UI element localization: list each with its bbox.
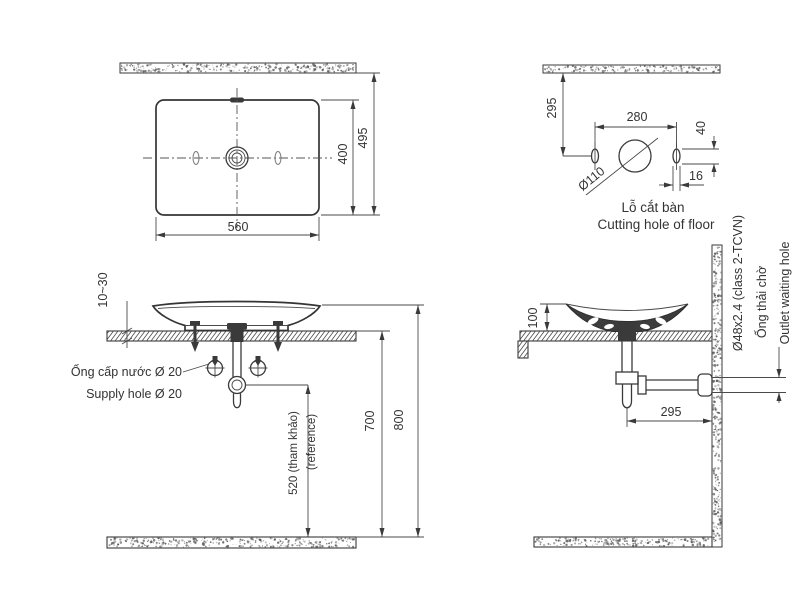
side-elevation-view: 100 295 <box>518 215 792 547</box>
dim-label-side-295: 295 <box>661 405 682 419</box>
dim-label-400: 400 <box>336 144 350 165</box>
basin-outline-plan <box>156 100 319 215</box>
dimension-520: 520 (tham khảo) (reference) <box>246 385 319 537</box>
basin-rim-inner <box>158 306 315 308</box>
front-elevation-view: Ống cấp nước Ø 20 Supply hole Ø 20 10~30… <box>71 272 424 548</box>
installation-drawing: 560 400 495 <box>0 0 800 600</box>
dim-label-520-en: (reference) <box>306 414 318 470</box>
dimension-495: 495 <box>356 73 380 215</box>
leader-dia-110: Ø110 <box>576 138 658 195</box>
drain-pipe-side <box>616 341 712 408</box>
cutting-hole-label-en: Cutting hole of floor <box>597 217 715 232</box>
dim-label-40: 40 <box>694 121 708 135</box>
outlet-label-en: Outlet waiting hole <box>778 242 792 345</box>
dimension-280: 280 <box>595 110 677 148</box>
cutting-hole-label-vi: Lỗ cắt bàn <box>621 200 684 215</box>
dimension-400: 400 <box>321 100 380 215</box>
side-counter-edge <box>518 341 528 358</box>
dim-label-700: 700 <box>363 411 377 432</box>
dimension-100: 100 <box>526 304 566 331</box>
dim-label-100: 100 <box>526 308 540 329</box>
dim-label-10-30: 10~30 <box>96 272 110 307</box>
dim-label-495: 495 <box>356 128 370 149</box>
dimension-16: 16 <box>659 166 704 191</box>
outlet-label-vi: Ống thải chờ <box>754 266 769 338</box>
plan-view: 560 400 495 <box>120 63 380 241</box>
dimension-side-295: 295 <box>627 405 712 427</box>
supply-hole-left <box>206 356 225 378</box>
dim-label-dia110: Ø110 <box>576 164 608 194</box>
drain-pipe-front <box>229 341 246 408</box>
dim-label-280: 280 <box>627 110 648 124</box>
supply-leader <box>183 364 209 372</box>
dim-label-800: 800 <box>392 410 406 431</box>
dimension-700: 700 <box>363 331 385 537</box>
cutting-hole-view: 295 280 Ø110 40 <box>543 65 720 232</box>
drawing-canvas: 560 400 495 <box>0 0 800 600</box>
supply-hole-right <box>249 356 268 378</box>
dimension-560: 560 <box>156 217 319 241</box>
dim-label-560: 560 <box>228 220 249 234</box>
dim-label-520: 520 (tham khảo) <box>288 411 300 495</box>
supply-label-en: Supply hole Ø 20 <box>86 387 182 401</box>
outlet-callout: Ø48x2.4 (class 2-TCVN) Ống thải chờ Outl… <box>712 215 792 403</box>
dim-label-cut-295: 295 <box>545 98 559 119</box>
dimension-cut-295: 295 <box>545 73 591 156</box>
dim-label-16: 16 <box>689 169 703 183</box>
outlet-spec-label: Ø48x2.4 (class 2-TCVN) <box>731 215 745 351</box>
supply-label-vi: Ống cấp nước Ø 20 <box>71 364 182 379</box>
